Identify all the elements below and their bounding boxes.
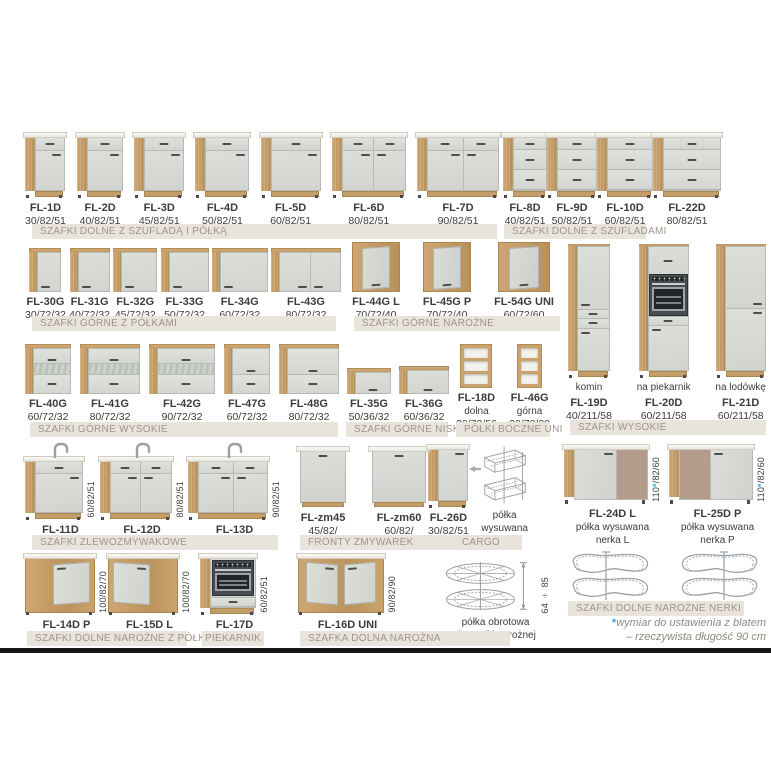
cfront-part <box>557 137 597 191</box>
product-sub-label: półka wysuwana <box>576 522 649 533</box>
section-gorne-narozne: FL-44G L70/72/40FL-45G P70/72/40FL-54G U… <box>352 244 554 321</box>
door-part <box>463 151 499 190</box>
cabinet-art <box>716 244 766 378</box>
cplinth-part <box>210 608 254 614</box>
door-part <box>79 253 109 291</box>
cfront-part <box>35 137 65 191</box>
cabinet-art <box>134 132 184 198</box>
cside-part <box>212 252 220 292</box>
cfoot-part <box>77 517 80 520</box>
product-art <box>547 130 597 198</box>
cfoot-part <box>717 375 720 378</box>
section-dolne-szuflada-polka: FL-1D30/82/51FL-2D40/82/51FL-3D45/82/51F… <box>25 130 499 227</box>
cabinet-art <box>568 244 610 378</box>
product-code: FL-16D UNI <box>318 619 377 631</box>
product-code: FL-30G <box>26 296 64 308</box>
product-FL-30G: FL-30G30/72/32 <box>25 244 66 321</box>
flp-part <box>288 374 338 393</box>
section-bar-0: SZAFKI DOLNE Z SZUFLADĄ I PÓŁKĄ <box>32 224 497 239</box>
h-part <box>247 370 256 372</box>
product-FL-35G: FL-35G50/36/32 <box>347 342 391 423</box>
h-part <box>688 179 697 181</box>
cdoor-part <box>344 562 376 606</box>
product-art <box>417 130 499 198</box>
product-FL-24D L: 110*/82/60FL-24D Lpółka wysuwananerka L <box>564 444 661 546</box>
cfront-part <box>232 348 270 394</box>
cplinth-part <box>110 513 170 519</box>
cplinth-part <box>374 502 424 507</box>
product-code: FL-26D <box>430 512 467 524</box>
ctop-part <box>132 132 186 138</box>
tdr-part <box>578 309 609 319</box>
product-code: FL-46G <box>511 392 549 404</box>
cfoot-part <box>548 195 551 198</box>
rowx-part <box>343 138 405 151</box>
h-part <box>467 154 476 156</box>
vertical-dimension-label: 110*/82/60 <box>756 457 766 502</box>
product-FL-8D: FL-8D40/82/51 <box>503 130 547 227</box>
cabinet-art <box>113 248 157 292</box>
product-FL-zm45: FL-zm4545/82/ <box>298 430 348 537</box>
cfoot-part <box>243 195 246 198</box>
cabinet-art <box>100 456 172 520</box>
h-part <box>753 312 762 314</box>
doors-part <box>343 151 405 190</box>
cplinth-part <box>649 371 687 377</box>
ovwin-part <box>215 573 251 591</box>
drw-part <box>88 138 122 151</box>
door-part <box>170 253 208 291</box>
path-part <box>229 444 241 458</box>
cside-part <box>428 449 438 501</box>
product-art: 60/82/51 <box>200 553 269 615</box>
product-FL-25D P: 110*/82/60FL-25D Ppółka wysuwananerka P <box>669 444 766 546</box>
door-part <box>111 474 141 512</box>
section-items: FL-26D30/82/51półkawysuwana <box>428 430 528 537</box>
product-art <box>352 244 400 292</box>
cabinet-art <box>271 248 341 292</box>
section-polki-boczne-uni: FL-18Ddolna20/72/56FL-46Ggórna20/72/30 <box>456 342 550 430</box>
section-fronty-zmywarek: FL-zm4545/82/FL-zm6060/82/ <box>298 430 428 537</box>
product-FL-16D UNI: 90/82/90FL-16D UNI <box>298 553 397 631</box>
cside-part <box>261 137 271 191</box>
product-code: FL-9D <box>556 202 587 214</box>
g-part <box>573 554 647 572</box>
ctop-part <box>23 132 67 138</box>
h-part <box>573 159 582 161</box>
product-art <box>80 342 140 394</box>
cside-part <box>332 137 342 191</box>
drw-part <box>272 138 320 151</box>
h-part <box>476 143 485 145</box>
vertical-dimension-label: 110*/82/60 <box>651 457 661 502</box>
cabinet-art <box>399 366 449 394</box>
product-code: FL-17D <box>216 619 253 631</box>
cfoot-part <box>683 375 686 378</box>
pfront-part <box>300 451 346 503</box>
cabinet-art <box>149 344 215 394</box>
cfoot-part <box>26 517 29 520</box>
product-art: 110*/82/60 <box>669 444 766 504</box>
product-FL-45G P: FL-45G P70/72/40 <box>423 244 471 321</box>
product-art: 110*/82/60 <box>564 444 661 504</box>
drw-part <box>111 462 141 473</box>
cside-part <box>188 461 198 513</box>
product-arrow <box>469 430 481 508</box>
product-FL-43G: FL-43G80/72/32 <box>271 244 341 321</box>
cdoor-part <box>53 562 90 606</box>
h-part <box>236 154 245 156</box>
drw-part <box>199 462 233 473</box>
product-code: FL-45G P <box>423 296 471 308</box>
product-sub-label: dolna <box>464 406 488 417</box>
section-items: 100/82/70FL-14D P100/82/70FL-15D L <box>25 553 189 631</box>
cfront-part <box>35 461 83 513</box>
cside-part <box>29 252 37 292</box>
cabinet-art <box>25 132 65 198</box>
cfoot-part <box>59 195 62 198</box>
h-part <box>121 467 130 469</box>
h-part <box>309 383 318 385</box>
cfront-part <box>121 252 157 292</box>
product-code: FL-24D L <box>589 508 636 520</box>
cfront-part <box>725 246 766 371</box>
door-part <box>36 151 64 190</box>
corner-cabinet-art <box>25 553 95 615</box>
cabinet-art <box>261 132 321 198</box>
product-art: 64 ÷ 85 <box>441 553 550 615</box>
drw-part <box>463 138 499 150</box>
cfoot-part <box>262 195 265 198</box>
drw-part <box>428 138 463 150</box>
product-art <box>25 130 65 198</box>
cside-part <box>597 137 607 191</box>
cabinet-art <box>224 344 270 394</box>
ctop-part <box>259 132 323 138</box>
cside-part <box>639 246 648 371</box>
cplinth-part <box>557 191 595 197</box>
product-FL-19D: kominFL-19D40/211/58 <box>566 240 612 422</box>
section-wysokie: kominFL-19D40/211/58na piekarnikFL-20D60… <box>566 240 766 422</box>
section-bar-label: SZAFKI DOLNE Z SZUFLADĄ I PÓŁKĄ <box>40 224 227 239</box>
section-gorne-wysokie: FL-40G60/72/32FL-41G80/72/32FL-42G90/72/… <box>25 342 339 423</box>
door-part <box>726 247 765 308</box>
product-FL-48G: FL-48G80/72/32 <box>279 342 339 423</box>
section-items: FL-1D30/82/51FL-2D40/82/51FL-3D45/82/51F… <box>25 130 499 227</box>
cabinet-art <box>428 444 468 508</box>
cfoot-part <box>262 517 265 520</box>
cside-part <box>399 370 407 394</box>
cside-part <box>279 348 287 394</box>
angf-part <box>362 246 390 290</box>
section-narozne-nerki: 110*/82/60FL-24D Lpółka wysuwananerka L1… <box>564 444 766 601</box>
cplinth-part <box>87 191 121 197</box>
ctop-part <box>562 444 650 450</box>
product-art: 90/82/51 <box>188 440 281 520</box>
ctop-part <box>23 553 97 559</box>
footnote: *wymiar do ustawienia z blatem – rzeczyw… <box>520 616 766 644</box>
h-part <box>688 143 697 145</box>
path-part <box>687 556 754 572</box>
door-part <box>649 326 688 370</box>
cfront-part <box>169 252 209 292</box>
product-FL-54G UNI: FL-54G UNI60/72/60 <box>494 244 554 321</box>
cplinth-part <box>726 371 764 377</box>
door-part <box>122 253 156 291</box>
ovctl-part <box>215 563 251 567</box>
nerka-cabinet-art <box>669 444 753 504</box>
h-part <box>229 601 238 603</box>
cside-part <box>25 461 35 513</box>
cabinet-art <box>347 368 391 394</box>
h-part <box>581 304 590 306</box>
h-part <box>173 286 182 288</box>
ctop-part <box>545 132 599 138</box>
cside-part <box>25 137 35 191</box>
product-art: 100/82/70 <box>108 553 191 615</box>
cabinet-art <box>503 132 547 198</box>
doors-part <box>199 474 267 512</box>
product-art <box>279 342 339 394</box>
product-FL-42G: FL-42G90/72/32 <box>149 342 215 423</box>
product-art: 60/82/51 <box>25 440 96 520</box>
product-code: FL-31G <box>71 296 109 308</box>
section-bar-label-2: CARGO <box>462 535 500 550</box>
g-part <box>682 578 756 596</box>
section-bar-8: SZAFKI ZLEWOZMYWAKOWE <box>32 535 278 550</box>
corner-cabinet-art <box>298 553 384 615</box>
product-FL-15D L: 100/82/70FL-15D L <box>108 553 191 631</box>
section-items: FL-18Ddolna20/72/56FL-46Ggórna20/72/30 <box>456 342 550 430</box>
cplinth-part <box>607 191 651 197</box>
cfoot-part <box>166 517 169 520</box>
product-dimensions: 80/82/51 <box>667 216 708 227</box>
drw-part <box>558 170 596 190</box>
cplinth-part <box>35 513 81 519</box>
h-part <box>110 383 119 385</box>
tdr-part <box>578 319 609 329</box>
product-art <box>224 342 270 394</box>
h-part <box>652 329 661 331</box>
cfront-part <box>198 461 268 513</box>
h-part <box>137 567 146 570</box>
ovctl-part <box>652 277 685 281</box>
cfoot-part <box>642 500 645 504</box>
product-rotarySvg: 64 ÷ 85półka obrotowado szafki narożnej <box>441 553 550 641</box>
h-part <box>573 143 582 145</box>
rowx-part <box>111 462 171 474</box>
h-part <box>125 286 134 288</box>
product-FL-12D: 80/82/51FL-12D <box>100 440 185 536</box>
product-FL-7D: FL-7D90/82/51 <box>417 130 499 227</box>
product-code: FL-34G <box>221 296 259 308</box>
h-part <box>144 477 153 479</box>
cfront-part <box>513 137 547 191</box>
door-part <box>726 308 765 370</box>
h-part <box>82 286 91 288</box>
product-FL-3D: FL-3D45/82/51 <box>134 130 184 227</box>
h-part <box>52 154 61 156</box>
section-bar-7: PÓŁKI BOCZNE UNI <box>456 422 550 437</box>
cfront-part <box>157 348 215 394</box>
arrow-left-icon <box>469 464 481 474</box>
section-bar-label: SZAFKA DOLNA NAROŻNA <box>308 631 441 646</box>
product-pre-label: na lodówkę <box>715 382 766 393</box>
nerka-basket-icon <box>564 551 652 601</box>
rotary-shelf-icon <box>441 557 527 615</box>
product-code: FL-21D <box>722 397 759 409</box>
cside-part <box>134 137 144 191</box>
product-sub-label: wysuwana <box>481 523 528 534</box>
product-code: FL-5D <box>275 202 306 214</box>
h-part <box>589 313 598 315</box>
section-bar-label: PÓŁKI BOCZNE UNI <box>464 422 563 437</box>
door-part <box>199 474 233 512</box>
cabinet-art <box>279 344 339 394</box>
product-code: FL-19D <box>570 397 607 409</box>
product-FL-22D: FL-22D80/82/51 <box>653 130 721 227</box>
cside-part <box>503 137 513 191</box>
section-gorne-z-polkami: FL-30G30/72/32FL-31G40/72/32FL-32G45/72/… <box>25 244 341 321</box>
product-art <box>25 342 71 394</box>
cfoot-part <box>333 195 336 198</box>
section-bar-label: SZAFKI DOLNE Z SZUFLADAMI <box>512 224 667 239</box>
g-part <box>573 552 647 600</box>
drw-part <box>664 150 720 170</box>
cfront-part <box>220 252 268 292</box>
footnote-line-2: – rzeczywista długość 90 cm <box>520 630 766 644</box>
cfoot-part <box>541 195 544 198</box>
product-code: FL-54G UNI <box>494 296 554 308</box>
cside-part <box>149 348 157 394</box>
cabinet-art <box>200 553 256 615</box>
drw-part <box>514 138 546 150</box>
flp-part <box>34 375 70 393</box>
section-bar-4: SZAFKI WYSOKIE <box>570 420 766 435</box>
drw-part <box>514 170 546 190</box>
cfront-part <box>279 252 341 292</box>
cabinet-art <box>161 248 209 292</box>
door-part <box>233 474 268 512</box>
product-art <box>423 244 471 292</box>
h-part <box>395 455 404 457</box>
h-part <box>455 453 464 455</box>
product-art <box>716 240 766 378</box>
product-FL-14D P: 100/82/70FL-14D P <box>25 553 108 631</box>
h-part <box>664 320 673 322</box>
flp-part <box>89 349 139 363</box>
product-FL-33G: FL-33G50/72/32 <box>161 244 209 321</box>
cfront-part <box>110 461 172 513</box>
path-part <box>576 580 643 596</box>
flp-part <box>158 349 214 363</box>
product-art <box>77 130 123 198</box>
section-bar-12: PIEKARNIK <box>202 631 264 646</box>
cfoot-part <box>172 612 175 615</box>
gdoor-part <box>575 450 617 499</box>
product-FL-10D: FL-10D60/82/51 <box>597 130 653 227</box>
section-bar-label: SZAFKI GÓRNE Z PÓŁKAMI <box>40 316 177 331</box>
cfront-part <box>663 137 721 191</box>
product-pre-label: na piekarnik <box>637 382 691 393</box>
drw-part <box>36 138 64 151</box>
h-part <box>325 567 334 570</box>
product-code: FL-3D <box>144 202 175 214</box>
section-bar-label: SZAFKI DOLNE NAROŻNE NERKI <box>576 601 741 616</box>
cside-part <box>716 246 725 371</box>
cell-part <box>521 348 538 358</box>
h-part <box>128 477 137 479</box>
nerka-cabinet-art <box>564 444 648 504</box>
cell-part <box>521 361 538 371</box>
h-part <box>309 370 318 372</box>
cfoot-part <box>189 517 192 520</box>
product-FL-34G: FL-34G60/72/32 <box>212 244 268 321</box>
cplinth-part <box>205 191 247 197</box>
open-shelf-art <box>460 344 492 388</box>
product-code: FL-8D <box>509 202 540 214</box>
cfoot-part <box>715 195 718 198</box>
ctop-part <box>330 132 408 138</box>
doors-part <box>428 151 498 190</box>
cfront-part <box>210 558 256 608</box>
product-FL-4D: FL-4D50/82/51 <box>195 130 249 227</box>
product-code: FL-32G <box>116 296 154 308</box>
cplinth-part <box>271 191 319 197</box>
cell-part <box>464 374 488 384</box>
product-FL-17D: 60/82/51FL-17D <box>200 553 269 631</box>
product-FL-20D: na piekarnikFL-20D60/211/58 <box>637 240 691 422</box>
h-part <box>526 159 535 161</box>
h-part <box>223 143 232 145</box>
dishwasher-front-art <box>370 446 428 508</box>
h-part <box>581 332 590 334</box>
product-FL-2D: FL-2D40/82/51 <box>77 130 123 227</box>
ctop-part <box>595 132 655 138</box>
h-part <box>57 567 66 570</box>
product-code: FL-35G <box>350 398 388 410</box>
h-part <box>348 567 357 570</box>
product-code: FL-6D <box>353 202 384 214</box>
h-part <box>664 260 673 262</box>
cabinet-art <box>332 132 406 198</box>
product-art <box>271 244 341 292</box>
section-items: kominFL-19D40/211/58na piekarnikFL-20D60… <box>566 240 766 422</box>
cfoot-part <box>760 375 763 378</box>
cfront-part <box>37 252 61 292</box>
ctop-part <box>296 553 386 559</box>
section-bar-label: SZAFKI GÓRNE NAROŻNE <box>362 316 494 331</box>
product-art <box>482 430 528 508</box>
product-code: FL-25D P <box>694 508 742 520</box>
product-code: FL-44G L <box>352 296 400 308</box>
h-part <box>626 143 635 145</box>
h-part <box>451 154 460 156</box>
door-part <box>356 373 390 393</box>
vertical-dimension-label: 64 ÷ 85 <box>540 577 550 613</box>
product-FL-46G: FL-46Ggórna20/72/30 <box>509 342 550 430</box>
section-items: FL-44G L70/72/40FL-45G P70/72/40FL-54G U… <box>352 244 554 321</box>
cfoot-part <box>117 195 120 198</box>
section-bar-5: SZAFKI GÓRNE WYSOKIE <box>30 422 338 437</box>
h-part <box>526 143 535 145</box>
cfoot-part <box>178 195 181 198</box>
cside-part <box>195 137 205 191</box>
ctop-part <box>198 553 258 559</box>
cfront-part <box>87 137 123 191</box>
product-art <box>70 244 110 292</box>
cfoot-part <box>565 500 568 504</box>
